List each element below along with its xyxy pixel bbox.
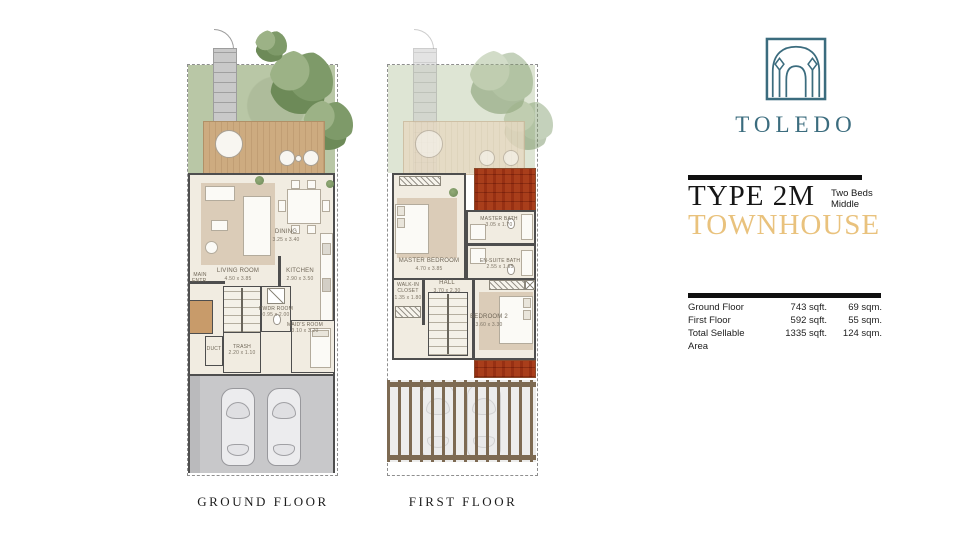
plant-icon (326, 180, 334, 188)
beds-line1: Two Beds (831, 188, 873, 199)
room-dims: 3.05 x 1.70 (480, 222, 517, 228)
room-name: LIVING ROOM (217, 268, 259, 274)
divider-rule (688, 293, 881, 298)
room-name: TRASH (233, 344, 251, 350)
toledo-logo (765, 36, 827, 102)
gate-door-arc (414, 29, 434, 49)
dining-chair (278, 200, 286, 212)
row-sqm: 55 sqm. (827, 314, 882, 327)
car-icon (267, 388, 301, 466)
room-dims: 0.95 x 2.00 (259, 312, 293, 318)
interior-wall (422, 280, 425, 325)
stair-rail (447, 294, 449, 354)
room-name: MASTER BEDROOM (399, 258, 459, 264)
pergola (387, 380, 536, 462)
ground-floor-caption: GROUND FLOOR (183, 494, 343, 510)
wardrobe-closet (399, 176, 441, 186)
room-label-bedroom2: BEDROOM 2 3.60 x 3.30 (470, 314, 508, 328)
room-name: MAID'S ROOM (287, 322, 323, 328)
car-icon (221, 388, 255, 466)
room-name: DUCT (207, 346, 222, 352)
deck-side-table (295, 155, 302, 162)
powder-mirror (267, 288, 285, 304)
first-floor-caption: FIRST FLOOR (383, 494, 543, 510)
walkin-closet-shelves (395, 306, 421, 318)
room-dims: 2.55 x 1.65 (480, 264, 520, 270)
room-name: MASTER BATH (480, 216, 517, 222)
room-label-dining: DINING 3.25 x 3.40 (273, 229, 300, 243)
table-row: Ground Floor 743 sqft. 69 sqm. (688, 301, 882, 314)
brand-name: TOLEDO (696, 112, 896, 138)
shower (521, 250, 533, 276)
gate-door-arc (214, 29, 234, 49)
room-label-duct: DUCT (207, 346, 222, 352)
room-name: HALL (439, 280, 455, 286)
plant-icon (255, 176, 264, 185)
room-name: PWDR ROOM (259, 306, 293, 312)
type-title: TYPE 2M (688, 182, 815, 211)
room-label-hall: HALL 3.70 x 2.30 (434, 280, 461, 294)
pergola-beam (387, 455, 536, 460)
row-sqft: 592 sqft. (765, 314, 827, 327)
pillow (523, 298, 531, 308)
room-dims: 2.90 x 3.50 (286, 276, 314, 282)
room-name: EN-SUITE BATH (480, 258, 520, 264)
pillow (397, 218, 405, 228)
dining-chair (307, 180, 316, 189)
moorish-arches-icon (765, 36, 827, 102)
row-sqft: 1335 sqft. (765, 327, 827, 353)
row-sqm: 69 sqm. (827, 301, 882, 314)
deck-table (415, 130, 443, 158)
room-dims: 1.35 x 1.80 (394, 295, 422, 301)
roof-tiles (474, 168, 536, 212)
beds-subtitle: Two Beds Middle (831, 188, 873, 210)
room-label-mbath: MASTER BATH 3.05 x 1.70 (480, 216, 517, 229)
brochure-page: { "brand": { "name": "TOLEDO", "logo_ico… (0, 0, 960, 540)
room-name: BEDROOM 2 (470, 314, 508, 320)
plant-icon (449, 188, 458, 197)
deck-ottoman (279, 150, 295, 166)
row-label: Ground Floor (688, 301, 765, 314)
deck-table (215, 130, 243, 158)
room-dims: 2.20 x 1.10 (229, 350, 256, 356)
room-label-walkin: WALK-IN CLOSET 1.35 x 1.80 (394, 282, 422, 301)
room-name: KITCHEN (286, 268, 314, 274)
dining-chair (322, 200, 330, 212)
room-dims: 3.60 x 3.30 (470, 322, 508, 328)
room-label-entry: MAIN ENTR. (188, 272, 212, 285)
tree-icon (255, 30, 287, 62)
room-dims: 3.25 x 3.40 (273, 237, 300, 243)
row-label: Total Sellable Area (688, 327, 765, 353)
room-dims: 3.10 x 3.20 (287, 328, 323, 334)
interior-wall (468, 243, 534, 246)
room-label-living: LIVING ROOM 4.50 x 3.85 (217, 268, 259, 282)
room-label-ensuite: EN-SUITE BATH 2.55 x 1.65 (480, 258, 520, 271)
sofa (205, 186, 235, 201)
stove-icon (322, 278, 331, 292)
table-row: Total Sellable Area 1335 sqft. 124 sqm. (688, 327, 882, 353)
deck-ottoman (503, 150, 519, 166)
pillow (523, 310, 531, 320)
shower (521, 214, 533, 240)
garage (188, 376, 335, 473)
deck-ottoman (303, 150, 319, 166)
pergola-beam (387, 382, 536, 387)
room-name: DINING (275, 229, 297, 235)
room-dims: 4.70 x 3.85 (399, 266, 459, 272)
deck-ottoman (479, 150, 495, 166)
sink-icon (322, 243, 331, 255)
room-dims: 4.50 x 3.85 (217, 276, 259, 282)
room-label-kitchen: KITCHEN 2.90 x 3.50 (286, 268, 314, 282)
dining-chair (307, 225, 316, 234)
row-sqft: 743 sqft. (765, 301, 827, 314)
coffee-table (211, 220, 228, 231)
wardrobe-closet (489, 280, 525, 290)
ground-floor-plan: LIVING ROOM 4.50 x 3.85 DINING 3.25 x 3.… (183, 28, 343, 483)
row-label: First Floor (688, 314, 765, 327)
armchair (205, 241, 218, 254)
room-label-master: MASTER BEDROOM 4.70 x 3.85 (399, 258, 459, 272)
dining-chair (291, 180, 300, 189)
pillow (397, 206, 405, 216)
room-dims: 3.70 x 2.30 (434, 288, 461, 294)
pergola-slats (387, 380, 536, 462)
category-title: TOWNHOUSE (688, 211, 880, 240)
room-label-maids: MAID'S ROOM 3.10 x 3.20 (287, 322, 323, 335)
room-label-trash: TRASH 2.20 x 1.10 (229, 344, 256, 357)
table-row: First Floor 592 sqft. 55 sqm. (688, 314, 882, 327)
room-name: MAIN ENTR. (192, 272, 208, 284)
row-sqm: 124 sqm. (827, 327, 882, 353)
sofa (243, 196, 271, 256)
first-floor-plan: MASTER BEDROOM 4.70 x 3.85 MASTER BATH 3… (383, 28, 543, 483)
room-name: WALK-IN CLOSET (397, 282, 419, 294)
duct-shaft (525, 280, 535, 290)
area-table: Ground Floor 743 sqft. 69 sqm. First Flo… (688, 301, 882, 353)
entry-canopy (189, 300, 213, 334)
room-label-pwdr: PWDR ROOM 0.95 x 2.00 (259, 306, 293, 319)
roof-tiles (474, 360, 536, 378)
dining-table (287, 189, 321, 224)
